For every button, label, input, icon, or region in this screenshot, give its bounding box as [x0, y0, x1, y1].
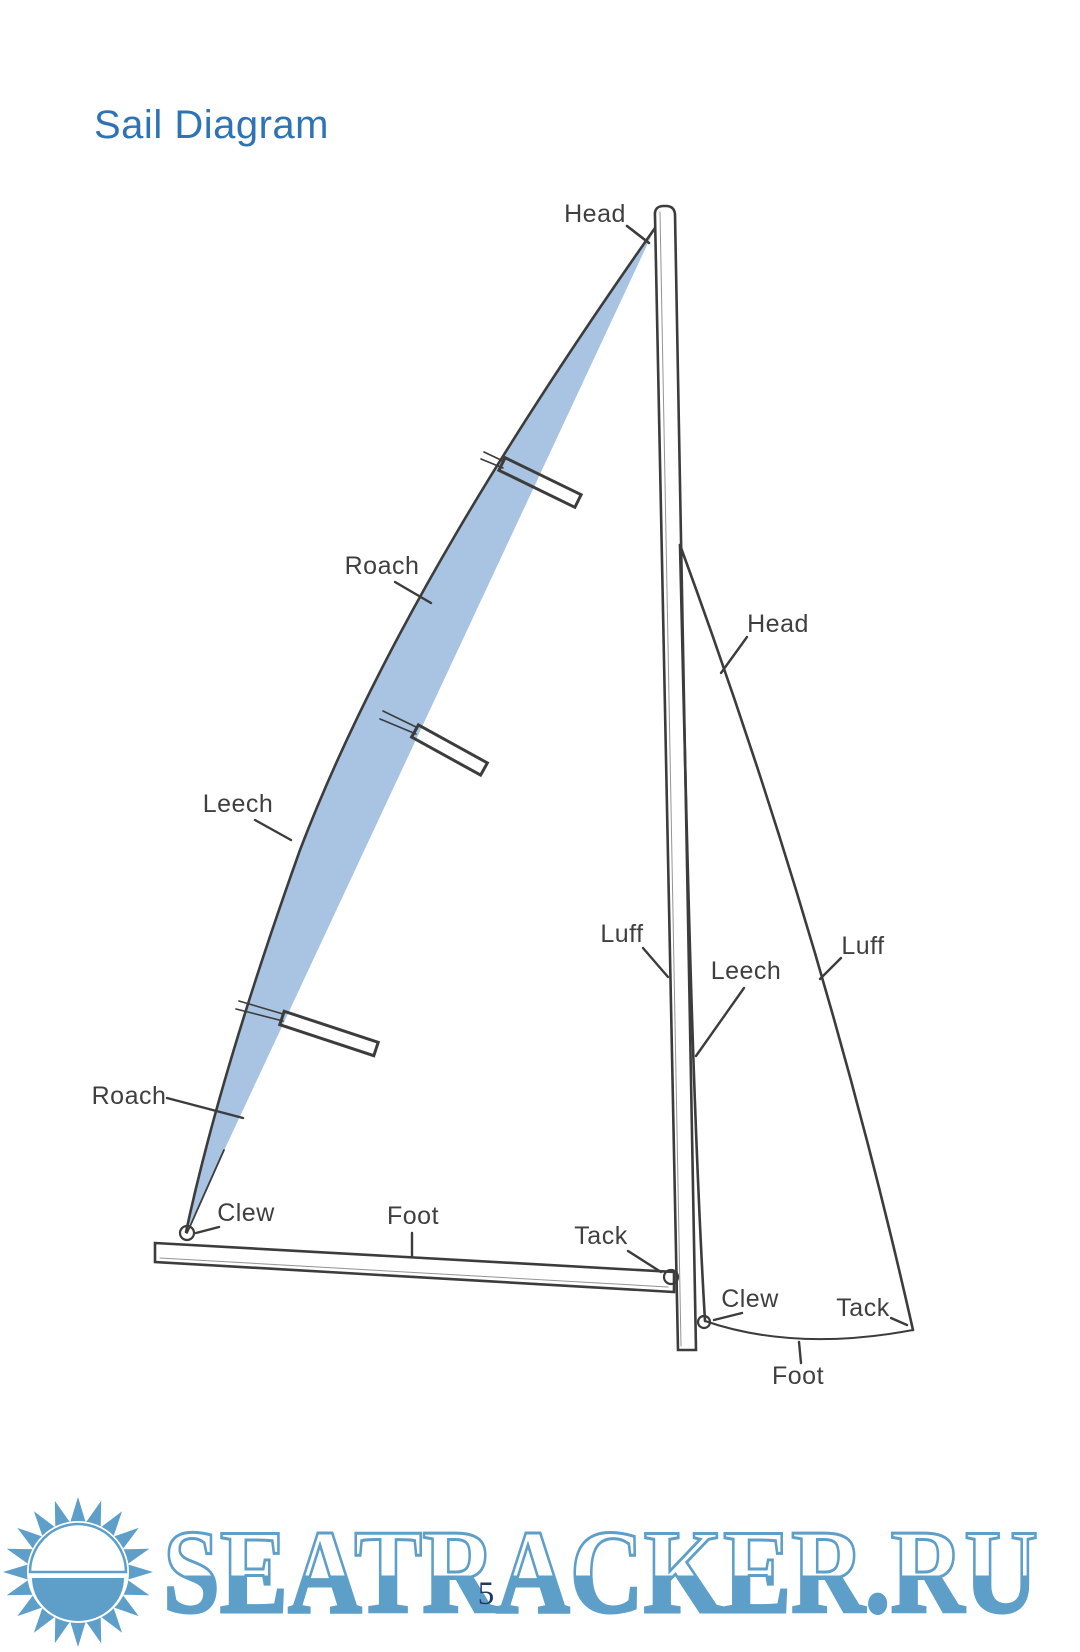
- watermark-text: SEATRACKER.RU: [163, 1505, 1038, 1638]
- pointer-mainsail-clew: [196, 1227, 219, 1233]
- mast-body: [655, 206, 696, 1350]
- pointer-mainsail-head: [627, 226, 649, 243]
- jib-foot-line: [705, 1321, 913, 1339]
- sail-diagram-page: Sail Diagram: [0, 0, 1080, 1652]
- label-mainsail-tack: Tack: [574, 1222, 627, 1250]
- label-jib-tack: Tack: [836, 1294, 889, 1322]
- mast: [655, 206, 696, 1350]
- pointer-mainsail-leech: [255, 820, 291, 840]
- sun-logo: [3, 1497, 153, 1647]
- mainsail-group: [186, 228, 655, 1233]
- pointer-jib-luff: [820, 958, 841, 979]
- diagram-labels: Head Roach Leech Roach Clew Foot Tack Lu…: [92, 200, 890, 1390]
- label-jib-clew: Clew: [721, 1285, 779, 1313]
- pointer-mainsail-luff: [643, 948, 668, 977]
- label-mainsail-clew: Clew: [217, 1199, 275, 1227]
- pointer-jib-clew: [714, 1313, 742, 1320]
- label-jib-leech: Leech: [711, 957, 782, 985]
- label-mainsail-leech: Leech: [203, 790, 274, 818]
- watermark: SEATRACKER.RU: [3, 1497, 1038, 1647]
- mainsail-roach-area: [186, 228, 655, 1232]
- boom: [155, 1243, 674, 1292]
- pointer-jib-leech: [696, 988, 744, 1056]
- pointer-jib-tack: [891, 1318, 907, 1325]
- batten-1-pocket-line-a: [484, 452, 503, 461]
- boom-body: [155, 1243, 674, 1292]
- pointer-jib-foot: [799, 1342, 801, 1363]
- pointer-jib-head: [721, 637, 747, 673]
- label-jib-head: Head: [747, 610, 809, 638]
- batten-3-rect: [280, 1011, 378, 1055]
- label-mainsail-roach-lower: Roach: [92, 1082, 167, 1110]
- label-mainsail-luff: Luff: [600, 920, 643, 948]
- batten-2-rect: [412, 725, 488, 775]
- label-mainsail-foot: Foot: [387, 1202, 439, 1230]
- label-mainsail-roach-upper: Roach: [345, 552, 420, 580]
- label-mainsail-head: Head: [564, 200, 626, 228]
- boom-inner-sketch-line: [160, 1258, 668, 1287]
- page-title: Sail Diagram: [94, 103, 329, 147]
- label-jib-luff: Luff: [841, 932, 884, 960]
- pointer-lines: [167, 226, 907, 1363]
- label-jib-foot: Foot: [772, 1362, 824, 1390]
- page-number: 5: [478, 1576, 495, 1612]
